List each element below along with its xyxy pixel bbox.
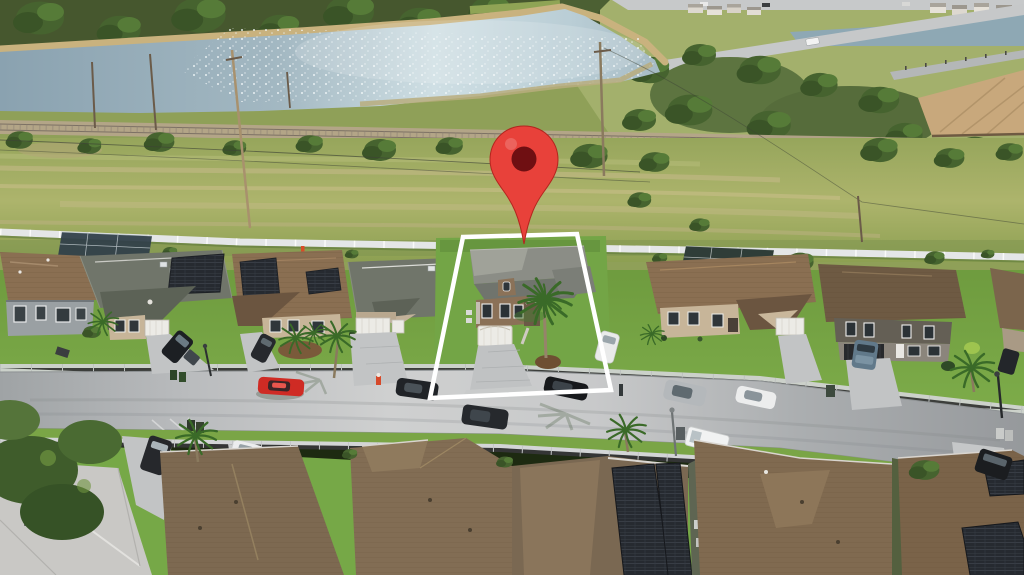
skylight <box>428 266 435 271</box>
fg-d-gable-section <box>520 460 600 575</box>
trash-bin <box>676 427 685 440</box>
palm-mulch-ring <box>535 355 561 369</box>
palm-shadow <box>514 310 546 322</box>
porch-column <box>896 344 904 358</box>
pin-highlight <box>505 138 517 150</box>
garage-door-small <box>392 320 404 333</box>
trash-bin-light <box>996 428 1004 439</box>
garage-door <box>145 320 169 336</box>
skylight <box>160 262 167 267</box>
pin-hole <box>512 147 537 172</box>
stone-quoins <box>476 302 480 324</box>
garage-door <box>356 318 390 334</box>
trash-bin <box>826 385 835 397</box>
house-right-3 <box>640 254 816 344</box>
lamp-head <box>669 407 674 412</box>
solar-array <box>306 268 341 294</box>
lamp-head <box>203 344 207 348</box>
distant-car <box>902 2 910 6</box>
gable-vent <box>148 300 153 305</box>
ac-unit <box>466 310 472 315</box>
mailbox-post <box>619 384 623 396</box>
trash-bin <box>179 372 186 382</box>
skylight <box>764 470 768 474</box>
trash-bin <box>170 370 177 380</box>
solar-array <box>962 522 1024 575</box>
ac-unit <box>466 318 472 323</box>
aerial-photo <box>0 0 1024 575</box>
red-car <box>257 376 304 396</box>
house-right-4-two-story <box>818 264 966 371</box>
garage-door <box>776 318 804 335</box>
trash-bin-light <box>1005 430 1013 441</box>
glare <box>295 20 645 84</box>
lamp-head <box>994 371 1000 377</box>
distant-car <box>762 3 770 7</box>
front-door <box>728 318 738 332</box>
fire-hydrant <box>376 376 381 385</box>
steel-blue-car <box>851 339 879 370</box>
fg-house-d-solar <box>512 456 692 575</box>
fg-house-c <box>350 438 512 575</box>
